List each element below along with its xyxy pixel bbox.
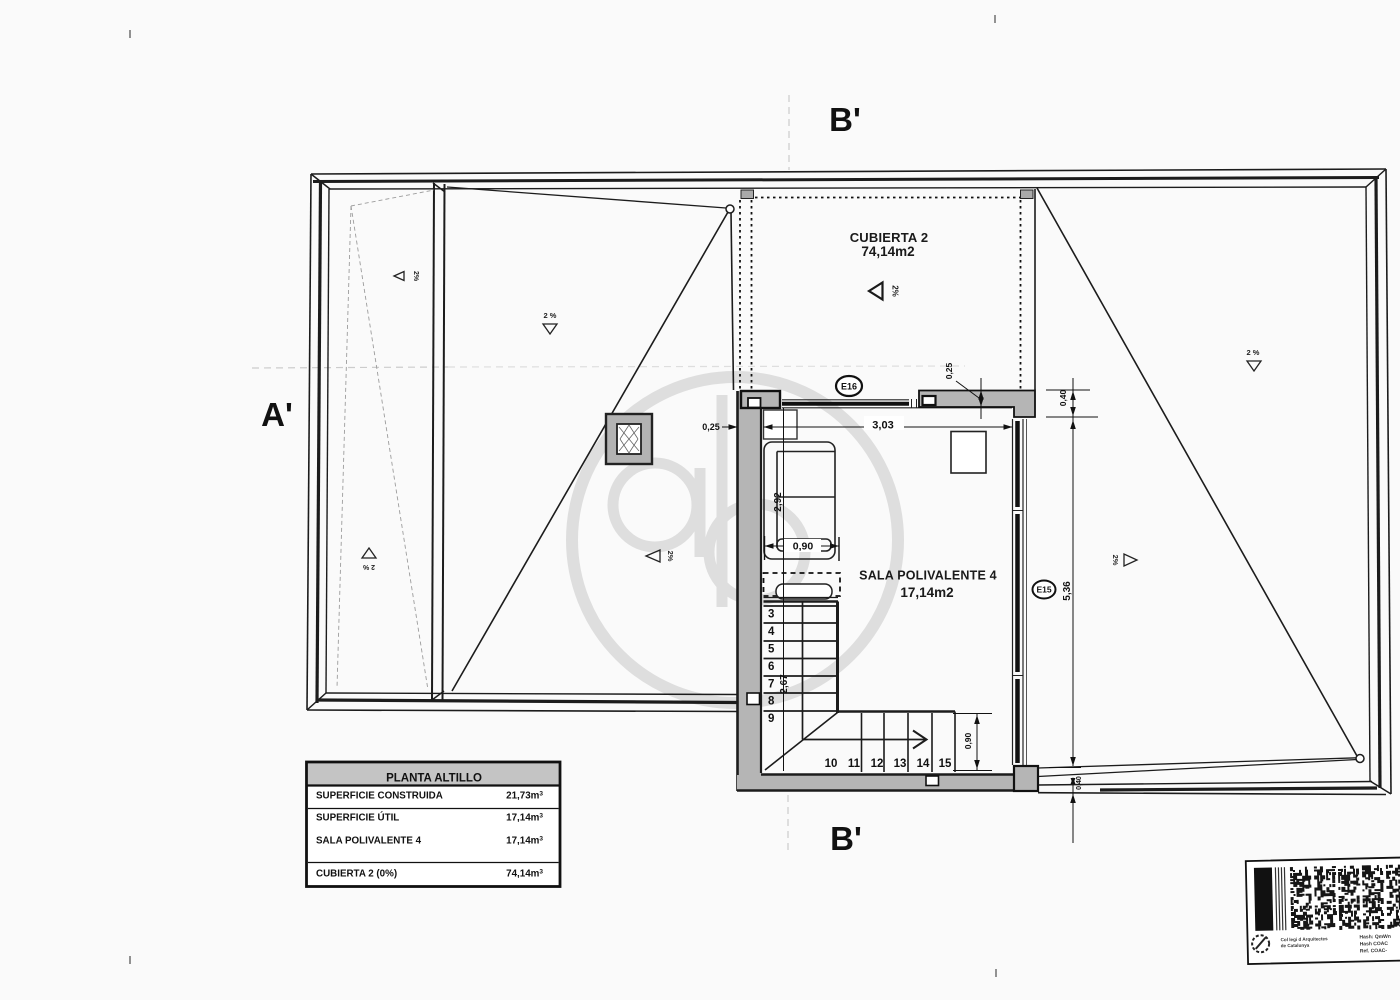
svg-text:2,67: 2,67 [779,674,790,694]
svg-text:Hash COAC: Hash COAC [1360,941,1389,948]
svg-text:8: 8 [768,696,775,708]
svg-text:Ref. COAC-: Ref. COAC- [1360,948,1388,955]
svg-text:3: 3 [768,609,774,621]
svg-text:PLANTA ALTILLO: PLANTA ALTILLO [386,773,482,785]
svg-text:CUBIERTA 2 (0%): CUBIERTA 2 (0%) [316,869,397,880]
svg-text:11: 11 [848,758,861,770]
svg-text:E15: E15 [1036,585,1051,595]
svg-text:2%: 2% [891,285,900,297]
svg-text:74,14m3: 74,14m3 [506,869,543,880]
svg-text:0,40: 0,40 [1058,389,1068,406]
svg-text:9: 9 [768,713,774,725]
svg-text:13: 13 [894,758,907,770]
svg-text:SALA POLIVALENTE 4: SALA POLIVALENTE 4 [316,836,422,847]
svg-text:17,14m2: 17,14m2 [900,585,953,600]
svg-text:0,90: 0,90 [963,732,973,749]
svg-text:B': B' [830,820,862,857]
svg-text:5: 5 [768,644,775,656]
svg-text:de Catalunya: de Catalunya [1281,943,1310,949]
svg-text:17,14m3: 17,14m3 [506,836,543,847]
svg-text:0,25: 0,25 [702,422,720,432]
svg-text:2%: 2% [1111,555,1120,566]
svg-text:0,90: 0,90 [793,541,814,553]
svg-text:12: 12 [871,758,884,770]
svg-text:4: 4 [768,626,775,638]
svg-text:17,14m3: 17,14m3 [506,813,543,824]
svg-text:2 %: 2 % [1247,348,1260,357]
svg-text:2 %: 2 % [544,311,557,320]
svg-text:10: 10 [825,758,838,770]
svg-text:0,25: 0,25 [944,362,954,379]
svg-text:6: 6 [768,661,774,673]
svg-text:SUPERFICIE ÚTIL: SUPERFICIE ÚTIL [316,812,399,824]
svg-text:21,73m3: 21,73m3 [506,791,543,802]
svg-text:7: 7 [768,679,774,691]
svg-text:2 %: 2 % [362,563,375,570]
svg-text:2%: 2% [666,551,675,562]
svg-text:2,92: 2,92 [773,492,784,512]
svg-text:SALA POLIVALENTE 4: SALA POLIVALENTE 4 [859,569,997,583]
svg-text:15: 15 [939,758,952,770]
svg-text:14: 14 [917,758,930,770]
svg-text:74,14m2: 74,14m2 [861,244,914,259]
svg-text:CUBIERTA 2: CUBIERTA 2 [850,230,929,245]
svg-text:5,36: 5,36 [1062,581,1073,601]
svg-text:0,40: 0,40 [1076,776,1083,790]
svg-text:Hash: QmWn: Hash: QmWn [1359,934,1391,941]
svg-text:E16: E16 [841,382,857,392]
svg-text:A': A' [261,396,293,433]
svg-text:SUPERFICIE CONSTRUIDA: SUPERFICIE CONSTRUIDA [316,791,443,802]
svg-text:2%: 2% [412,271,419,282]
svg-text:3,03: 3,03 [872,420,893,432]
svg-text:B': B' [829,101,861,138]
